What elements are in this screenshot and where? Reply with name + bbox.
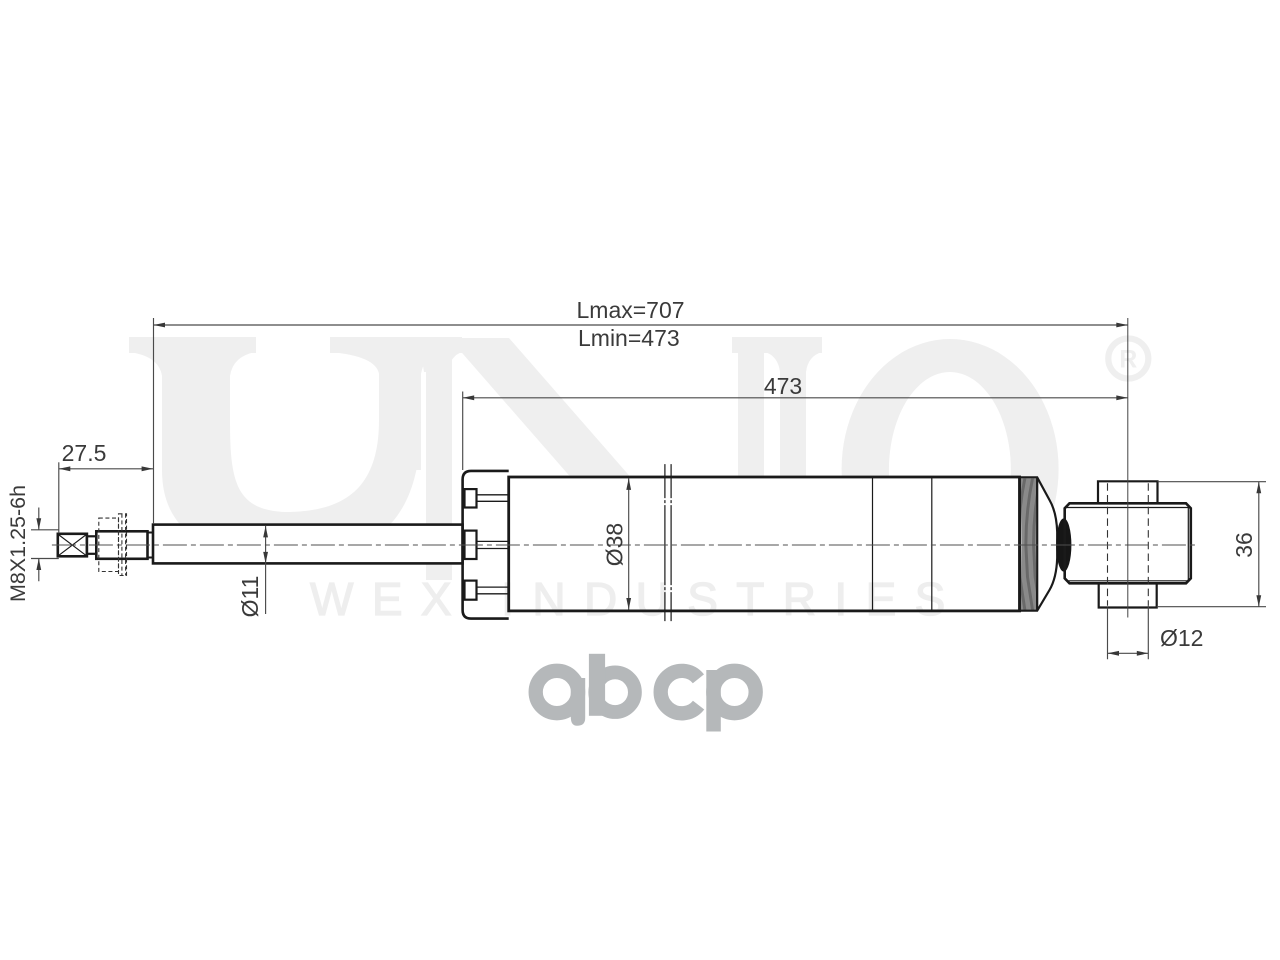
svg-text:473: 473	[764, 373, 802, 399]
svg-text:Lmax=707: Lmax=707	[577, 297, 685, 323]
svg-text:Lmin=473: Lmin=473	[578, 325, 680, 351]
svg-text:Ø12: Ø12	[1160, 625, 1203, 651]
svg-text:WEX INDUSTRIES: WEX INDUSTRIES	[310, 573, 964, 625]
svg-text:27.5: 27.5	[62, 440, 107, 466]
svg-text:Ø38: Ø38	[602, 523, 628, 566]
svg-text:36: 36	[1231, 532, 1257, 558]
svg-text:Ø11: Ø11	[237, 576, 263, 618]
svg-text:M8X1.25-6h: M8X1.25-6h	[6, 485, 30, 602]
